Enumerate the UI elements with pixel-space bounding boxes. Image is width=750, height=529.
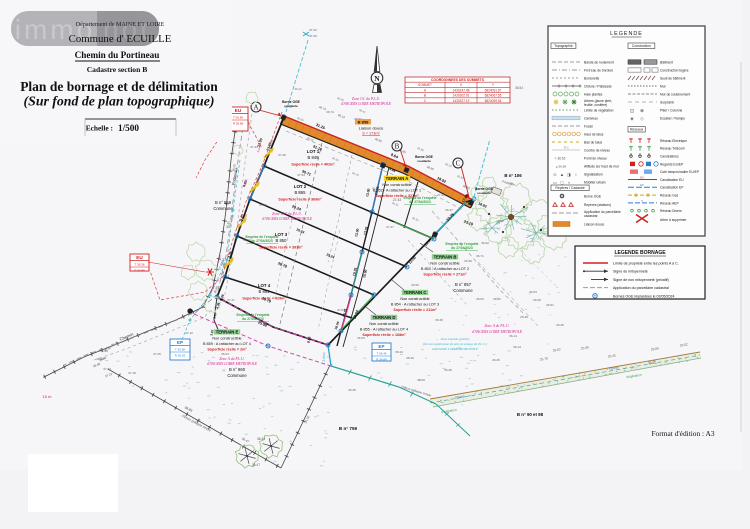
svg-text:TERRAIN E: TERRAIN E — [216, 330, 239, 335]
svg-text:26.08: 26.08 — [533, 298, 541, 302]
svg-text:B n° 857: B n° 857 — [455, 282, 472, 287]
svg-text:T 36.46: T 36.46 — [376, 352, 386, 356]
svg-text:T 36.56: T 36.56 — [233, 116, 243, 120]
svg-text:◻: ◻ — [560, 180, 563, 185]
svg-text:36.72: 36.72 — [285, 105, 292, 109]
svg-text:36.98: 36.98 — [96, 357, 104, 361]
svg-text:Repères (stations): Repères (stations) — [584, 203, 611, 207]
svg-text:36.50: 36.50 — [411, 283, 419, 287]
svg-text:Canalisation EU: Canalisation EU — [660, 178, 684, 182]
svg-text:Cadastre section B: Cadastre section B — [87, 65, 148, 74]
svg-text:du 27/04/2023: du 27/04/2023 — [242, 317, 264, 321]
svg-text:Point de niveau: Point de niveau — [584, 156, 607, 160]
svg-text:Superficie réelle = 271m²: Superficie réelle = 271m² — [423, 273, 467, 277]
svg-text:Commune: Commune — [227, 373, 247, 378]
svg-text:TERRAIN B: TERRAIN B — [434, 255, 457, 260]
svg-text:⊕: ⊕ — [640, 108, 644, 113]
svg-text:Superficie réelle = 429m²: Superficie réelle = 429m² — [242, 297, 286, 301]
svg-text:27.47: 27.47 — [386, 225, 394, 229]
svg-text:B n° 106: B n° 106 — [504, 173, 522, 178]
svg-text:B n° 759: B n° 759 — [339, 426, 358, 431]
svg-text:B 858: B 858 — [358, 120, 369, 125]
svg-text:Liaison douce: Liaison douce — [359, 126, 384, 131]
svg-text:Superficie réelle = 2m²: Superficie réelle = 2m² — [207, 348, 247, 352]
svg-text:TERRAIN C: TERRAIN C — [404, 290, 427, 295]
svg-text:TERRAIN A: TERRAIN A — [386, 176, 409, 181]
svg-text:36.43: 36.43 — [257, 437, 265, 441]
svg-text:36.14: 36.14 — [509, 334, 517, 338]
svg-text:Zone humide (pontis): Zone humide (pontis) — [440, 337, 470, 341]
svg-text:du 27/04/2023: du 27/04/2023 — [451, 246, 473, 250]
svg-text:37.54: 37.54 — [297, 173, 305, 177]
svg-text:S = 173m²: S = 173m² — [362, 132, 380, 136]
svg-text:d'ANGERS LOIRE METROPOLE: d'ANGERS LOIRE METROPOLE — [432, 347, 479, 351]
svg-text:B 852 - A rattacher au LOT 1: B 852 - A rattacher au LOT 1 — [373, 188, 421, 192]
svg-text:TERRAIN D: TERRAIN D — [373, 315, 396, 320]
svg-text:36.63: 36.63 — [221, 352, 229, 356]
svg-text:B 855 - A rattacher au LOT 4: B 855 - A rattacher au LOT 4 — [360, 327, 408, 331]
svg-text:Repères / Cadastre: Repères / Cadastre — [555, 186, 585, 190]
svg-text:+ 36.52: + 36.52 — [555, 157, 566, 161]
svg-text:Liaison douce: Liaison douce — [584, 222, 605, 226]
svg-text:B 854 - A rattacher au LOT 3: B 854 - A rattacher au LOT 3 — [391, 302, 439, 306]
svg-text:EP: EP — [378, 344, 384, 349]
svg-text:6824067.55: 6824067.55 — [485, 94, 502, 98]
svg-text:Haie plantée: Haie plantée — [584, 92, 603, 96]
svg-text:36.92: 36.92 — [496, 219, 504, 223]
svg-text:N: N — [374, 74, 380, 83]
svg-text:▴ 36.98: ▴ 36.98 — [556, 165, 566, 169]
svg-text:LEGENDE BORNAGE: LEGENDE BORNAGE — [614, 250, 666, 256]
svg-text:Superficie réelle = 402m²: Superficie réelle = 402m² — [291, 163, 335, 167]
svg-text:(Servant application du plan d: (Servant application du plan de zonage d… — [423, 342, 487, 346]
svg-text:EU: EU — [235, 108, 242, 113]
svg-text:26.30: 26.30 — [556, 323, 564, 327]
svg-text:Plan de bornage et de délimita: Plan de bornage et de délimitation — [20, 79, 218, 94]
svg-text:Haut de talus: Haut de talus — [584, 132, 604, 136]
svg-text:du 27/04/2023: du 27/04/2023 — [409, 200, 431, 204]
svg-text:T 36.36: T 36.36 — [134, 263, 144, 267]
svg-text:Construction: Construction — [632, 44, 651, 48]
svg-text:6824091.67: 6824091.67 — [485, 88, 502, 92]
svg-text:Superficie réelle = 397m²: Superficie réelle = 397m² — [259, 246, 303, 250]
svg-text:37.20: 37.20 — [309, 34, 317, 38]
svg-text:36.14: 36.14 — [513, 345, 521, 349]
svg-text:36.54: 36.54 — [515, 86, 523, 90]
svg-text:Département de MAINE ET LOIRE: Département de MAINE ET LOIRE — [76, 22, 165, 28]
svg-text:LEGENDE: LEGENDE — [610, 31, 643, 37]
svg-text:B n° 860: B n° 860 — [229, 367, 246, 372]
svg-text:Réseaux: Réseaux — [630, 128, 644, 132]
svg-text:A: A — [253, 103, 258, 111]
svg-text:37.22: 37.22 — [103, 367, 111, 371]
svg-text:Candélabres: Candélabres — [660, 155, 679, 159]
svg-text:SOMMET: SOMMET — [418, 83, 432, 87]
svg-text:Fil d'eau de bordure: Fil d'eau de bordure — [584, 68, 613, 72]
svg-text:B n° 858: B n° 858 — [215, 200, 232, 205]
svg-text:R 35.86: R 35.86 — [233, 122, 244, 126]
svg-text:d'ANGERS LOIRE METROPOLE: d'ANGERS LOIRE METROPOLE — [472, 330, 523, 334]
svg-text:1430302.91: 1430302.91 — [453, 94, 470, 98]
svg-text:36.92: 36.92 — [481, 241, 489, 245]
svg-text:Bordurette: Bordurette — [584, 76, 600, 80]
svg-text:Non constructible: Non constructible — [400, 297, 429, 301]
svg-text:Non constructible: Non constructible — [369, 322, 398, 326]
svg-text:LOT 1: LOT 1 — [307, 149, 320, 154]
svg-text:Non constructible: Non constructible — [212, 336, 241, 340]
svg-text:d'ANGERS LOIRE METROPOLE: d'ANGERS LOIRE METROPOLE — [207, 362, 258, 366]
svg-text:Superficie réelle = 369m²: Superficie réelle = 369m² — [278, 198, 322, 202]
svg-text:Réseau Electrique: Réseau Electrique — [660, 139, 687, 143]
svg-text:37.03: 37.03 — [337, 308, 345, 312]
svg-text:B n° 90 et 98: B n° 90 et 98 — [517, 412, 544, 417]
svg-text:36.40: 36.40 — [406, 356, 414, 360]
svg-text:10 m: 10 m — [43, 394, 53, 399]
svg-text:36.5: 36.5 — [563, 146, 569, 150]
svg-text:Clôture / Palissade: Clôture / Palissade — [584, 84, 612, 88]
svg-text:36.74: 36.74 — [326, 110, 334, 114]
svg-text:Bâtiment: Bâtiment — [660, 60, 673, 64]
svg-text:Application du parcellaire cad: Application du parcellaire cadastral — [613, 286, 669, 290]
svg-text:37.12: 37.12 — [185, 331, 193, 335]
svg-text:d'ANGERS LOIRE METROPOLE: d'ANGERS LOIRE METROPOLE — [341, 102, 392, 106]
svg-text:Bande de roulement: Bande de roulement — [584, 60, 614, 64]
svg-text:37.47: 37.47 — [227, 298, 235, 302]
svg-text:EU: EU — [136, 255, 143, 260]
svg-text:1430247.48: 1430247.48 — [453, 88, 470, 92]
svg-text:EP: EP — [177, 340, 183, 345]
svg-text:36.35: 36.35 — [348, 388, 356, 392]
svg-text:Non constructible: Non constructible — [430, 261, 459, 265]
svg-text:36.49: 36.49 — [417, 378, 425, 382]
svg-text:26.38: 26.38 — [520, 315, 528, 319]
svg-text:du 27/04/2023: du 27/04/2023 — [251, 239, 273, 243]
svg-text:C: C — [456, 159, 461, 167]
svg-text:37.62: 37.62 — [259, 203, 267, 207]
svg-text:36.38: 36.38 — [435, 318, 443, 322]
svg-text:36.53: 36.53 — [529, 290, 537, 294]
svg-text:36.47: 36.47 — [445, 208, 453, 212]
svg-text:Arbre à supprimer: Arbre à supprimer — [660, 218, 687, 222]
svg-text:Superficie réelle = 211m²: Superficie réelle = 211m² — [393, 308, 437, 312]
svg-text:Canalisation EP: Canalisation EP — [660, 186, 684, 190]
svg-text:Non constructible: Non constructible — [382, 183, 411, 187]
svg-text:1/500: 1/500 — [118, 123, 139, 133]
svg-text:R 34.84: R 34.84 — [376, 358, 387, 362]
svg-text:27.43: 27.43 — [437, 193, 445, 197]
svg-text:Format d'édition : A3: Format d'édition : A3 — [651, 429, 714, 438]
svg-text:Escalier / Rampe: Escalier / Rampe — [660, 116, 685, 120]
svg-text:Limite de végétation: Limite de végétation — [584, 108, 614, 112]
svg-text:EU: EU — [640, 175, 644, 179]
svg-text:Fossé: Fossé — [584, 124, 593, 128]
svg-text:R 34.86: R 34.86 — [134, 269, 145, 273]
svg-text:◫: ◫ — [630, 108, 635, 113]
svg-text:37.18: 37.18 — [128, 371, 136, 375]
svg-text:Limite de propriété entre les: Limite de propriété entre les points A à… — [613, 262, 679, 266]
svg-text:Signe de mitoyenneté: Signe de mitoyenneté — [613, 270, 648, 274]
svg-text:soudante: soudante — [477, 191, 491, 195]
svg-text:soudante: soudante — [417, 159, 431, 163]
svg-text:Mur: Mur — [660, 84, 667, 88]
svg-text:Caniveau: Caniveau — [584, 116, 598, 120]
svg-text:B 851: B 851 — [259, 289, 271, 294]
svg-text:Réseau AEP: Réseau AEP — [660, 201, 679, 205]
svg-text:Echelle :: Echelle : — [86, 124, 113, 133]
svg-text:(Sur fond de plan topographiqu: (Sur fond de plan topographique) — [24, 94, 215, 110]
svg-text:Signalisation: Signalisation — [584, 172, 603, 176]
svg-text:Signe de non mitoyenneté (priv: Signe de non mitoyenneté (privatif) — [613, 278, 669, 282]
svg-text:LOT 2: LOT 2 — [294, 184, 307, 189]
svg-text:B: B — [424, 94, 426, 98]
svg-text:Zone 1AU du P.L.U.: Zone 1AU du P.L.U. — [272, 212, 302, 216]
svg-text:Zone A du P.L.U.: Zone A du P.L.U. — [219, 357, 244, 361]
svg-text:Bornes OGE implantées le 02/05: Bornes OGE implantées le 02/05/2024 — [613, 294, 675, 298]
svg-text:cadastral: cadastral — [584, 214, 598, 218]
svg-text:▲: ▲ — [560, 172, 564, 177]
svg-text:37.25: 37.25 — [153, 352, 161, 356]
svg-text:Commune: Commune — [213, 206, 233, 211]
svg-text:Mur de soutènement: Mur de soutènement — [660, 92, 690, 96]
svg-text:Commune: Commune — [453, 288, 473, 293]
svg-text:feuille, conifère): feuille, conifère) — [584, 103, 607, 107]
svg-text:Chemin du Portineau: Chemin du Portineau — [75, 50, 160, 60]
svg-text:37.49: 37.49 — [278, 153, 286, 157]
svg-text:d'ANGERS LOIRE METROPOLE: d'ANGERS LOIRE METROPOLE — [262, 217, 313, 221]
svg-text:Regards EU/EP: Regards EU/EP — [660, 162, 684, 166]
svg-text:Réseau Gaz: Réseau Gaz — [660, 194, 679, 198]
svg-text:36.48: 36.48 — [444, 368, 452, 372]
svg-text:B 848: B 848 — [308, 155, 320, 160]
svg-text:Construction légère: Construction légère — [660, 68, 689, 72]
svg-text:Borne OGE: Borne OGE — [584, 194, 602, 198]
svg-text:Altitude sur haut de mur: Altitude sur haut de mur — [584, 164, 620, 168]
svg-text:6824059.54: 6824059.54 — [485, 99, 502, 103]
svg-text:Pilier / Colonne: Pilier / Colonne — [660, 108, 683, 112]
svg-text:▿: ▿ — [568, 180, 570, 185]
svg-text:♀: ♀ — [574, 172, 577, 177]
svg-text:Topographie: Topographie — [554, 44, 573, 48]
svg-text:LOT 4: LOT 4 — [258, 283, 271, 288]
svg-text:36.47: 36.47 — [252, 463, 260, 467]
svg-text:26.91: 26.91 — [546, 303, 554, 307]
svg-text:Réseau Divers: Réseau Divers — [660, 209, 682, 213]
svg-text:Commune d' ECUILLE: Commune d' ECUILLE — [69, 33, 172, 45]
svg-text:26.36: 26.36 — [464, 259, 472, 263]
svg-text:EP: EP — [640, 183, 644, 187]
svg-text:⊙: ⊙ — [553, 172, 557, 177]
svg-text:36.22: 36.22 — [295, 87, 302, 91]
svg-text:Seuil de bâtiment: Seuil de bâtiment — [660, 76, 686, 80]
svg-text:Bas de talus: Bas de talus — [584, 140, 602, 144]
svg-text:36.44: 36.44 — [395, 350, 403, 354]
svg-text:1430327.19: 1430327.19 — [453, 99, 470, 103]
svg-text:36.71: 36.71 — [476, 254, 484, 258]
svg-text:2.00m: 2.00m — [322, 352, 327, 362]
svg-text:Superficie réelle = 168m²: Superficie réelle = 168m² — [362, 333, 406, 337]
svg-text:T 36.60: T 36.60 — [175, 348, 185, 352]
svg-text:37.22: 37.22 — [309, 28, 317, 32]
svg-text:Zone A de P.L.U.: Zone A de P.L.U. — [485, 324, 510, 328]
svg-text:26.36: 26.36 — [492, 358, 500, 362]
svg-text:Zone UC du P.L.U.: Zone UC du P.L.U. — [352, 97, 380, 101]
svg-text:R 35.02: R 35.02 — [175, 354, 186, 358]
svg-text:B 853 - A rattacher au LOT 2: B 853 - A rattacher au LOT 2 — [421, 267, 469, 271]
svg-text:B 865: B 865 — [295, 190, 307, 195]
svg-text:Réseau Télécom: Réseau Télécom — [660, 147, 685, 151]
svg-text:36.52: 36.52 — [476, 297, 484, 301]
svg-text:Courbe de niveau: Courbe de niveau — [584, 148, 610, 152]
svg-text:Mobilier urbain: Mobilier urbain — [584, 180, 606, 184]
svg-text:36.92: 36.92 — [493, 297, 501, 301]
svg-text:◨: ◨ — [567, 172, 571, 177]
svg-text:B 859 : A rattacher au LOT 4: B 859 : A rattacher au LOT 4 — [203, 342, 251, 346]
svg-text:COORDONNEES DES SOMMETS: COORDONNEES DES SOMMETS — [431, 78, 485, 82]
svg-text:▭: ▭ — [553, 180, 557, 185]
svg-text:Cote tampon/radier EU/EP: Cote tampon/radier EU/EP — [660, 170, 700, 174]
svg-text:36.99: 36.99 — [100, 349, 108, 353]
svg-text:Surplomb: Surplomb — [660, 100, 674, 104]
